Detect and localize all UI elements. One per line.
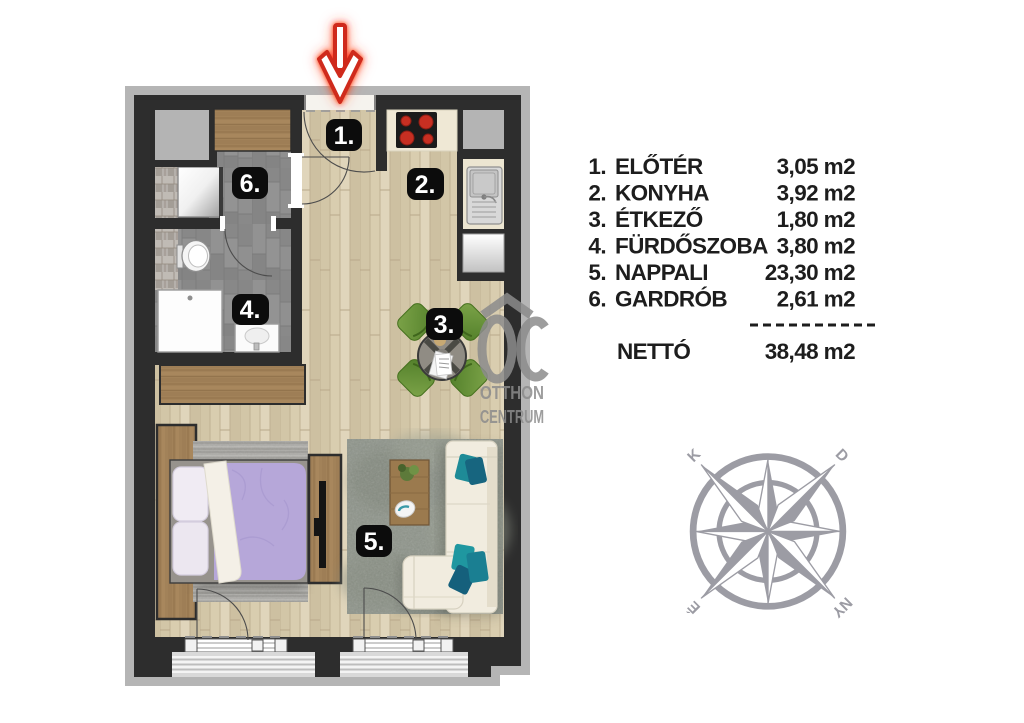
svg-text:3.: 3. [588, 207, 606, 232]
svg-text:FÜRDŐSZOBA: FÜRDŐSZOBA [615, 234, 768, 259]
svg-text:4.: 4. [240, 296, 261, 324]
svg-text:3.: 3. [434, 311, 455, 339]
svg-text:NAPPALI: NAPPALI [615, 260, 708, 285]
svg-text:KONYHA: KONYHA [615, 181, 709, 206]
svg-text:NETTÓ: NETTÓ [617, 339, 690, 364]
svg-text:GARDRÓB: GARDRÓB [615, 287, 727, 312]
svg-text:5.: 5. [588, 260, 606, 285]
svg-text:6.: 6. [588, 287, 606, 312]
svg-text:5.: 5. [364, 528, 385, 556]
svg-text:ELŐTÉR: ELŐTÉR [615, 154, 703, 179]
svg-text:2,61 m2: 2,61 m2 [777, 287, 855, 312]
svg-text:1.: 1. [588, 154, 606, 179]
svg-text:OTTHON: OTTHON [480, 382, 544, 403]
svg-text:4.: 4. [588, 234, 606, 259]
svg-text:3,05 m2: 3,05 m2 [777, 154, 855, 179]
svg-text:3,80 m2: 3,80 m2 [777, 234, 855, 259]
svg-text:1,80 m2: 1,80 m2 [777, 207, 855, 232]
svg-text:23,30 m2: 23,30 m2 [765, 260, 855, 285]
svg-text:2.: 2. [588, 181, 606, 206]
svg-text:ÉTKEZŐ: ÉTKEZŐ [615, 207, 703, 232]
svg-text:1.: 1. [334, 122, 355, 150]
svg-text:3,92 m2: 3,92 m2 [777, 181, 855, 206]
svg-text:CENTRUM: CENTRUM [480, 407, 544, 427]
svg-text:2.: 2. [415, 171, 436, 199]
svg-text:38,48 m2: 38,48 m2 [765, 339, 855, 364]
svg-text:6.: 6. [240, 170, 261, 198]
